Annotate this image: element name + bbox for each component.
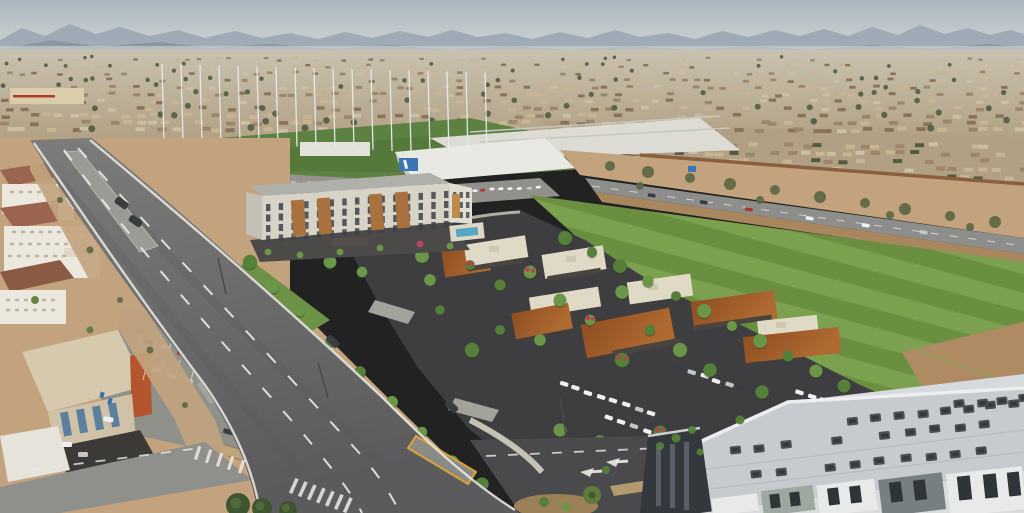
house-roof	[314, 59, 319, 61]
house-roof	[970, 153, 979, 157]
house-roof	[148, 121, 157, 125]
house-roof	[964, 66, 969, 68]
bougainvillea-bloom	[661, 429, 665, 433]
house-roof	[396, 64, 401, 66]
house-roof	[967, 121, 976, 125]
entry-canopy	[332, 238, 368, 246]
hotel-window	[342, 198, 346, 205]
aerial-rendering-canvas	[0, 0, 1024, 513]
house-roof	[929, 142, 938, 146]
parked-car	[489, 187, 494, 190]
house-roof	[268, 66, 273, 68]
bougainvillea-bloom	[525, 267, 529, 271]
house-roof	[577, 113, 585, 117]
desert-shrub	[605, 161, 615, 171]
tree	[558, 231, 572, 245]
suburb-tree	[881, 112, 887, 118]
house-roof	[1, 99, 8, 102]
house-roof	[941, 153, 950, 157]
house-roof	[30, 122, 39, 126]
house-roof	[654, 85, 660, 88]
house-roof	[745, 153, 754, 157]
house-roof	[264, 127, 273, 131]
hotel-window	[444, 191, 448, 198]
house-roof	[861, 145, 870, 149]
house-roof	[783, 93, 790, 96]
house-roof	[509, 80, 515, 83]
house-roof	[172, 101, 179, 104]
suburb-tree	[185, 103, 191, 109]
suburb-tree	[44, 63, 48, 67]
accent-shrub	[337, 249, 344, 256]
hotel-window	[355, 218, 359, 225]
house-roof	[681, 58, 686, 60]
desert-shrub	[966, 223, 974, 231]
house-roof	[383, 73, 388, 76]
tree	[645, 325, 655, 335]
house-roof	[811, 158, 820, 162]
desert-shrub	[642, 166, 654, 178]
house-roof	[889, 121, 898, 125]
house-roof	[293, 71, 298, 74]
hvac-fan	[875, 458, 882, 463]
house-roof	[1005, 177, 1014, 181]
house-roof	[784, 121, 793, 125]
house-roof	[316, 87, 322, 90]
suburb-tree	[182, 62, 186, 66]
house-roof	[398, 57, 403, 59]
house-roof	[457, 86, 463, 89]
house-roof	[976, 101, 983, 104]
house-roof	[772, 85, 778, 88]
hotel-window	[279, 203, 283, 210]
suburb-tree	[208, 76, 213, 81]
house-roof	[145, 108, 153, 111]
house-roof	[508, 120, 517, 124]
house-roof	[631, 99, 638, 102]
house-roof	[1020, 92, 1024, 95]
house-roof	[123, 120, 132, 124]
desert-shrub	[57, 197, 63, 203]
house-roof	[770, 58, 775, 60]
house-roof	[788, 151, 797, 155]
suburb-tree	[948, 63, 952, 67]
house-roof	[366, 64, 371, 66]
house-roof	[136, 127, 145, 131]
hotel-window	[304, 201, 308, 208]
house-roof	[980, 71, 985, 74]
house-roof	[680, 65, 685, 67]
house-roof	[370, 99, 377, 102]
house-roof	[980, 121, 989, 125]
house-roof	[863, 127, 872, 131]
hotel-window	[342, 219, 346, 226]
house-roof	[682, 79, 688, 82]
house-roof	[862, 115, 870, 119]
house-roof	[747, 73, 752, 76]
suburb-tree	[429, 62, 433, 66]
house-roof	[302, 86, 308, 89]
house-roof	[483, 65, 488, 67]
house-roof	[885, 128, 894, 132]
house-roof	[313, 72, 318, 75]
suburb-tree	[183, 77, 188, 82]
suburb-tree	[986, 105, 992, 111]
house-roof	[981, 94, 988, 97]
house-roof	[967, 80, 973, 83]
suburb-tree	[601, 62, 605, 66]
house-roof	[354, 92, 361, 95]
suburb-tree	[589, 92, 594, 97]
desert-shrub	[182, 402, 188, 408]
hvac-fan	[827, 465, 834, 470]
house-roof	[195, 120, 204, 124]
tree	[809, 364, 822, 377]
suburb-tree	[154, 82, 159, 87]
house-roof	[226, 57, 231, 59]
house-roof	[861, 122, 870, 126]
house-roof	[910, 87, 916, 90]
suburb-tree	[69, 77, 74, 82]
suburb-tree	[872, 90, 877, 95]
house-roof	[942, 59, 947, 61]
house-roof	[85, 86, 91, 89]
bougainvillea-bloom	[586, 316, 590, 320]
house-roof	[431, 108, 439, 111]
suburb-tree	[90, 76, 95, 81]
tree	[615, 285, 628, 298]
suburb-tree	[613, 55, 616, 58]
parked-car	[472, 189, 477, 192]
hotel-west-face	[246, 192, 262, 240]
house-roof	[551, 86, 557, 89]
suburb-tree	[810, 118, 817, 125]
house-roof	[1008, 64, 1013, 66]
house-roof	[534, 64, 539, 66]
hvac-fan	[951, 452, 958, 457]
suburb-tree	[780, 55, 783, 58]
house-roof	[253, 122, 262, 126]
house-roof	[615, 93, 622, 96]
house-roof	[189, 72, 194, 75]
house-roof	[552, 79, 558, 82]
suburb-tree	[915, 89, 920, 94]
house-roof	[183, 113, 191, 117]
house-roof	[249, 115, 257, 119]
hotel-window	[466, 202, 469, 208]
house-roof	[291, 121, 300, 125]
house-roof	[240, 101, 247, 104]
house-roof	[500, 93, 507, 96]
tree	[703, 363, 716, 376]
hvac-fan	[778, 470, 785, 475]
house-roof	[716, 107, 724, 110]
house-roof	[848, 121, 857, 125]
house-roof	[839, 64, 844, 66]
desert-shrub	[736, 416, 745, 425]
house-roof	[372, 86, 378, 89]
house-roof	[889, 92, 896, 95]
house-roof	[924, 86, 930, 89]
house-roof	[755, 86, 761, 89]
suburb-tree	[936, 109, 942, 115]
suburb-tree	[84, 78, 89, 83]
desert-shrub	[147, 347, 154, 354]
house-roof	[980, 87, 986, 90]
hvac-fan	[1010, 401, 1017, 406]
house-roof	[715, 152, 724, 156]
house-roof	[328, 71, 333, 74]
palm-highlight	[256, 502, 265, 511]
suburb-tree	[223, 91, 228, 96]
house-roof	[133, 85, 139, 88]
house-roof	[31, 113, 39, 117]
house-roof	[964, 168, 973, 172]
tree	[243, 255, 257, 269]
house-roof	[138, 114, 146, 118]
house-roof	[97, 99, 104, 102]
house-roof	[499, 121, 508, 125]
suburb-tree	[496, 78, 501, 83]
hotel-window	[444, 201, 448, 208]
house-roof	[21, 108, 29, 111]
house-roof	[896, 150, 905, 154]
house-roof	[133, 58, 138, 60]
house-roof	[157, 128, 166, 132]
house-roof	[666, 99, 673, 102]
house-roof	[855, 151, 864, 155]
suburb-tree	[56, 82, 61, 87]
house-roof	[845, 73, 850, 76]
hvac-fan	[881, 433, 888, 438]
desert-shrub	[31, 296, 39, 304]
house-roof	[6, 108, 14, 111]
house-roof	[651, 100, 658, 103]
house-roof	[799, 85, 805, 88]
house-roof	[79, 113, 87, 117]
house-roof	[851, 129, 860, 133]
suburb-tree	[887, 64, 891, 68]
house-roof	[895, 144, 904, 148]
house-roof	[209, 86, 215, 89]
house-roof	[172, 127, 181, 131]
hvac-fan	[998, 399, 1005, 404]
house-roof	[694, 79, 700, 82]
suburb-tree	[585, 62, 589, 66]
house-roof	[955, 106, 963, 109]
suburb-tree	[755, 104, 761, 110]
house-roof	[484, 99, 491, 102]
house-roof	[54, 113, 62, 117]
house-roof	[947, 167, 956, 171]
house-roof	[937, 93, 944, 96]
house-roof	[859, 100, 866, 103]
house-roof	[563, 114, 571, 118]
house-roof	[897, 127, 906, 131]
house-roof	[340, 73, 345, 76]
house-roof	[760, 99, 767, 102]
house-roof	[328, 115, 336, 119]
house-roof	[820, 114, 828, 118]
palm-highlight	[231, 498, 242, 509]
house-roof	[588, 114, 596, 118]
house-roof	[435, 93, 442, 96]
house-roof	[45, 79, 51, 82]
house-roof	[566, 99, 573, 102]
house-roof	[619, 66, 624, 68]
house-roof	[876, 107, 884, 110]
hvac-fan	[782, 442, 789, 447]
house-roof	[495, 85, 501, 88]
house-roof	[96, 73, 101, 76]
parked-car	[498, 187, 503, 190]
house-roof	[433, 58, 438, 60]
hotel-window	[431, 212, 435, 219]
suburb-tree	[611, 105, 617, 111]
house-roof	[833, 80, 839, 83]
hotel-window	[419, 203, 423, 210]
house-roof	[788, 80, 794, 83]
house-roof	[264, 57, 269, 59]
hotel	[246, 173, 485, 262]
house-roof	[302, 79, 308, 82]
house-roof	[846, 145, 855, 149]
house-roof	[42, 113, 50, 117]
house-roof	[704, 107, 712, 110]
house-roof	[345, 94, 352, 97]
suburb-tree	[193, 89, 198, 94]
house-roof	[357, 73, 362, 76]
house-roof	[811, 71, 816, 74]
house-roof	[670, 78, 676, 81]
tree	[587, 247, 597, 257]
house-roof	[264, 92, 271, 95]
house-roof	[108, 108, 116, 111]
house-roof	[150, 113, 158, 117]
house-roof	[313, 66, 318, 68]
aerial-photo	[0, 0, 1024, 513]
house-roof	[380, 92, 387, 95]
suburb-tree	[757, 64, 761, 68]
house-roof	[500, 100, 507, 103]
house-roof	[877, 72, 882, 75]
house-roof	[705, 101, 712, 104]
house-roof	[943, 120, 952, 124]
amber-sign-panel	[452, 194, 460, 218]
house-roof	[456, 79, 462, 82]
house-roof	[838, 160, 847, 164]
house-roof	[353, 114, 361, 118]
house-roof	[226, 122, 235, 126]
house-roof	[202, 127, 211, 131]
house-roof	[816, 152, 825, 156]
parked-car	[78, 452, 88, 457]
house-roof	[20, 73, 25, 76]
house-roof	[601, 93, 608, 96]
house-roof	[910, 150, 919, 154]
house-roof	[550, 107, 558, 110]
house-roof	[916, 127, 925, 131]
tree	[465, 343, 479, 357]
suburb-tree	[262, 118, 269, 125]
house-roof	[508, 108, 516, 111]
suburb-tree	[83, 56, 86, 59]
house-roof	[31, 72, 36, 75]
suburb-tree	[64, 64, 68, 68]
house-roof	[456, 59, 461, 61]
house-roof	[762, 94, 769, 97]
house-roof	[1015, 107, 1023, 110]
house-roof	[834, 122, 843, 126]
hotel-window	[419, 223, 423, 230]
house-roof	[769, 99, 776, 102]
suburb-tree	[1001, 90, 1006, 95]
house-roof	[315, 94, 322, 97]
tree	[697, 304, 711, 318]
accent-shrub	[297, 252, 304, 259]
house-roof	[689, 66, 694, 68]
tree	[615, 353, 630, 368]
parked-car	[517, 187, 522, 190]
house-roof	[203, 99, 210, 102]
house-roof	[827, 152, 836, 156]
house-roof	[535, 114, 543, 118]
house-roof	[980, 158, 989, 162]
house-roof	[241, 121, 250, 125]
desert-shrub	[724, 178, 736, 190]
house-roof	[903, 113, 911, 117]
house-roof	[784, 106, 792, 109]
house-roof	[979, 145, 988, 149]
suburb-tree	[927, 125, 934, 132]
hotel-window	[266, 225, 270, 232]
house-roof	[7, 72, 12, 75]
house-roof	[937, 66, 942, 68]
house-roof	[903, 86, 909, 89]
house-roof	[199, 106, 207, 109]
house-roof	[392, 78, 398, 81]
tower-window-slits	[656, 442, 689, 510]
hotel-window	[355, 198, 359, 205]
hvac-fan	[851, 462, 858, 467]
desert-shrub	[899, 203, 911, 215]
parked-car	[480, 189, 485, 192]
suburb-tree	[92, 105, 98, 111]
house-roof	[457, 71, 462, 74]
house-roof	[377, 115, 385, 119]
house-roof	[843, 152, 852, 156]
house-roof	[996, 153, 1005, 157]
house-roof	[488, 71, 493, 74]
house-roof	[757, 78, 763, 81]
house-roof	[839, 93, 846, 96]
hvac-fan	[872, 415, 879, 420]
suburb-tree	[90, 55, 93, 58]
house-roof	[434, 73, 439, 76]
house-roof	[614, 113, 622, 117]
hvac-fan	[957, 426, 964, 431]
hotel-window	[279, 224, 283, 231]
house-roof	[294, 78, 300, 81]
suburb-tree	[301, 124, 308, 131]
suburb-tree	[545, 112, 551, 118]
freeway-sign	[688, 166, 696, 172]
house-roof	[253, 57, 258, 59]
house-roof	[890, 73, 895, 76]
hotel-window	[279, 214, 283, 221]
house-roof	[319, 100, 326, 103]
house-roof	[936, 166, 945, 170]
